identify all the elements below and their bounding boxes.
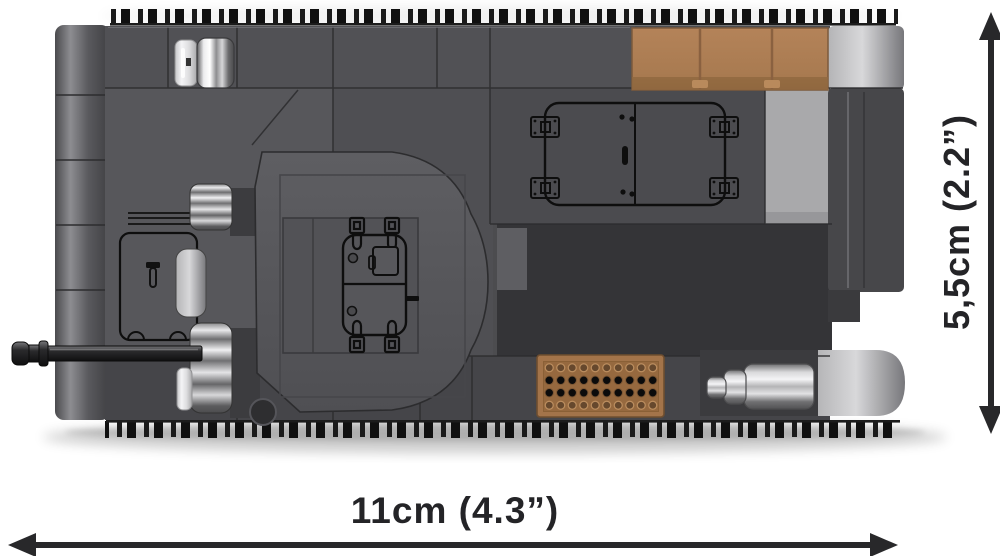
tank-top-view-illustration [0, 0, 1000, 556]
air-intake-grille [537, 355, 664, 417]
track-links-bottom [105, 420, 900, 438]
track-links-top [108, 9, 898, 26]
headlight [175, 38, 234, 88]
product-dimension-figure: 11cm (4.3”) 5,5cm (2.2”) [0, 0, 1000, 556]
cargo-box [632, 28, 828, 90]
exhaust-muffler [700, 350, 818, 416]
dimension-width-arrow [8, 533, 898, 556]
front-right-fender [828, 26, 904, 90]
rear-deck-panel [497, 224, 832, 357]
height-dimension-label: 5,5cm (2.2”) [936, 114, 978, 330]
light-gray-brick [765, 88, 829, 224]
dimension-height-arrow [979, 12, 1000, 434]
width-dimension-label: 11cm (4.3”) [351, 490, 559, 532]
rear-fender [816, 350, 905, 416]
